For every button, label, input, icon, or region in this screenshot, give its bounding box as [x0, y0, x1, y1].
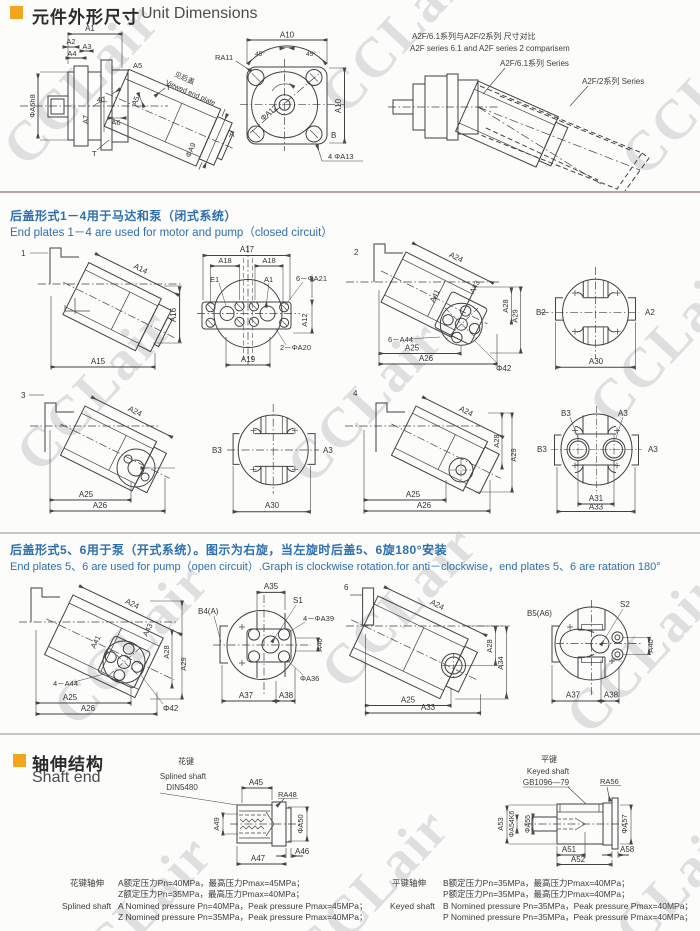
svg-text:DIN5480: DIN5480: [166, 783, 198, 792]
svg-text:A2F/6.1系列 Series: A2F/6.1系列 Series: [500, 58, 569, 68]
svg-text:A26: A26: [417, 501, 432, 510]
svg-text:6: 6: [344, 583, 349, 592]
svg-text:45°: 45°: [255, 50, 265, 58]
svg-text:2－ΦA20: 2－ΦA20: [280, 343, 311, 352]
svg-text:A26: A26: [93, 501, 108, 510]
svg-text:6－ΦA21: 6－ΦA21: [296, 274, 327, 283]
svg-text:ΦA54K6: ΦA54K6: [509, 811, 516, 838]
svg-text:S1: S1: [293, 596, 303, 605]
svg-text:A34: A34: [496, 656, 505, 669]
svg-text:B2: B2: [536, 308, 546, 317]
svg-text:A37: A37: [566, 691, 581, 700]
svg-text:Splined shaft: Splined shaft: [160, 772, 207, 781]
svg-text:A2: A2: [645, 308, 655, 317]
svg-text:B3: B3: [537, 445, 547, 454]
svg-text:A33: A33: [589, 503, 604, 512]
svg-text:A24: A24: [458, 404, 475, 419]
svg-text:A3: A3: [82, 42, 91, 51]
svg-text:A1: A1: [85, 24, 95, 33]
svg-text:4 ΦA13: 4 ΦA13: [328, 152, 354, 161]
svg-text:A40: A40: [646, 639, 655, 652]
svg-text:A41: A41: [428, 288, 442, 304]
svg-text:ΦA6h8: ΦA6h8: [28, 94, 37, 118]
svg-text:A58: A58: [620, 845, 635, 854]
svg-text:ΦA12: ΦA12: [259, 103, 280, 122]
svg-text:A24: A24: [448, 250, 465, 265]
svg-text:3: 3: [21, 391, 26, 400]
svg-text:2: 2: [354, 248, 359, 257]
svg-text:Φ42: Φ42: [163, 704, 179, 713]
svg-text:A12: A12: [300, 313, 309, 326]
svg-text:A41: A41: [89, 634, 103, 650]
svg-text:A15: A15: [91, 357, 106, 366]
svg-text:A18: A18: [218, 256, 231, 265]
svg-text:A: A: [229, 130, 235, 139]
svg-text:4－A44: 4－A44: [53, 679, 78, 688]
svg-text:B4(A): B4(A): [198, 607, 219, 616]
svg-text:A14: A14: [132, 262, 149, 277]
svg-text:A33: A33: [421, 703, 436, 712]
svg-text:A30: A30: [265, 501, 280, 510]
svg-text:A3: A3: [648, 445, 658, 454]
svg-text:A51: A51: [562, 845, 577, 854]
svg-text:A28: A28: [501, 299, 510, 312]
svg-text:A24: A24: [127, 404, 144, 419]
svg-text:A19: A19: [241, 355, 256, 364]
svg-text:A24: A24: [429, 598, 446, 612]
svg-text:B: B: [331, 131, 336, 140]
svg-text:A7: A7: [81, 115, 90, 124]
svg-text:平键: 平键: [541, 754, 557, 764]
svg-text:4－ΦA39: 4－ΦA39: [303, 614, 334, 623]
svg-text:45°: 45°: [306, 50, 316, 58]
svg-text:A17: A17: [240, 245, 255, 254]
svg-text:A10: A10: [280, 31, 295, 40]
svg-text:A2F/2系列 Series: A2F/2系列 Series: [582, 76, 644, 86]
svg-text:A5: A5: [133, 61, 142, 70]
svg-text:ΦA36: ΦA36: [300, 674, 319, 683]
svg-text:1: 1: [21, 249, 26, 258]
svg-text:A6: A6: [111, 118, 120, 127]
svg-text:ΦA55: ΦA55: [525, 815, 532, 833]
svg-text:A1: A1: [264, 275, 273, 284]
svg-text:A40: A40: [315, 638, 324, 651]
svg-text:ΦA9: ΦA9: [184, 141, 198, 158]
svg-text:B3: B3: [561, 409, 571, 418]
svg-text:花键: 花键: [178, 756, 194, 766]
svg-text:A18: A18: [262, 256, 275, 265]
svg-text:S2: S2: [620, 600, 630, 609]
svg-text:RA11: RA11: [215, 53, 233, 62]
svg-text:A26: A26: [419, 354, 434, 363]
svg-text:ΦA50: ΦA50: [296, 814, 305, 833]
svg-text:A35: A35: [264, 582, 279, 591]
svg-text:A25: A25: [406, 490, 421, 499]
svg-text:A37: A37: [239, 691, 254, 700]
svg-text:ΦA57: ΦA57: [620, 814, 629, 833]
svg-text:B5(A6): B5(A6): [527, 609, 552, 618]
svg-text:A30: A30: [589, 357, 604, 366]
svg-text:A49: A49: [212, 817, 221, 830]
svg-text:A2F series 6.1 and A2F series: A2F series 6.1 and A2F series 2 comparis…: [410, 44, 570, 53]
svg-text:A43: A43: [141, 622, 155, 638]
svg-text:GB1096—79: GB1096—79: [523, 778, 570, 787]
svg-text:A3: A3: [618, 409, 628, 418]
svg-text:A24: A24: [124, 597, 141, 611]
svg-text:A45: A45: [249, 778, 264, 787]
svg-text:4: 4: [353, 389, 358, 398]
svg-text:A4: A4: [67, 49, 76, 58]
svg-text:A3: A3: [323, 446, 333, 455]
svg-text:A26: A26: [81, 704, 96, 713]
svg-text:A25: A25: [405, 344, 420, 353]
svg-text:A38: A38: [604, 691, 619, 700]
svg-text:A52: A52: [571, 855, 586, 864]
svg-text:A38: A38: [279, 691, 294, 700]
svg-text:A29: A29: [511, 309, 520, 322]
svg-text:A28: A28: [492, 434, 501, 447]
svg-text:A28: A28: [162, 645, 171, 658]
svg-text:A25: A25: [401, 696, 416, 705]
svg-text:Φ42: Φ42: [496, 364, 512, 373]
svg-text:RA56: RA56: [600, 777, 619, 786]
svg-text:A29: A29: [509, 448, 518, 461]
svg-text:A47: A47: [251, 854, 266, 863]
svg-text:A29: A29: [179, 657, 188, 670]
svg-text:A2: A2: [66, 37, 75, 46]
svg-text:A10: A10: [334, 98, 343, 113]
svg-text:A46: A46: [295, 847, 310, 856]
svg-text:A53: A53: [496, 817, 505, 830]
svg-text:A2F/6.1系列与A2F/2系列 尺寸对比: A2F/6.1系列与A2F/2系列 尺寸对比: [412, 31, 536, 41]
svg-text:B3: B3: [212, 446, 222, 455]
svg-text:RA48: RA48: [278, 790, 297, 799]
svg-text:A16: A16: [169, 307, 178, 322]
svg-text:E1: E1: [210, 275, 219, 284]
svg-text:Keyed shaft: Keyed shaft: [527, 767, 570, 776]
svg-text:A25: A25: [63, 693, 78, 702]
svg-text:A25: A25: [79, 490, 94, 499]
svg-text:T: T: [92, 149, 97, 158]
svg-text:A28: A28: [485, 639, 494, 652]
